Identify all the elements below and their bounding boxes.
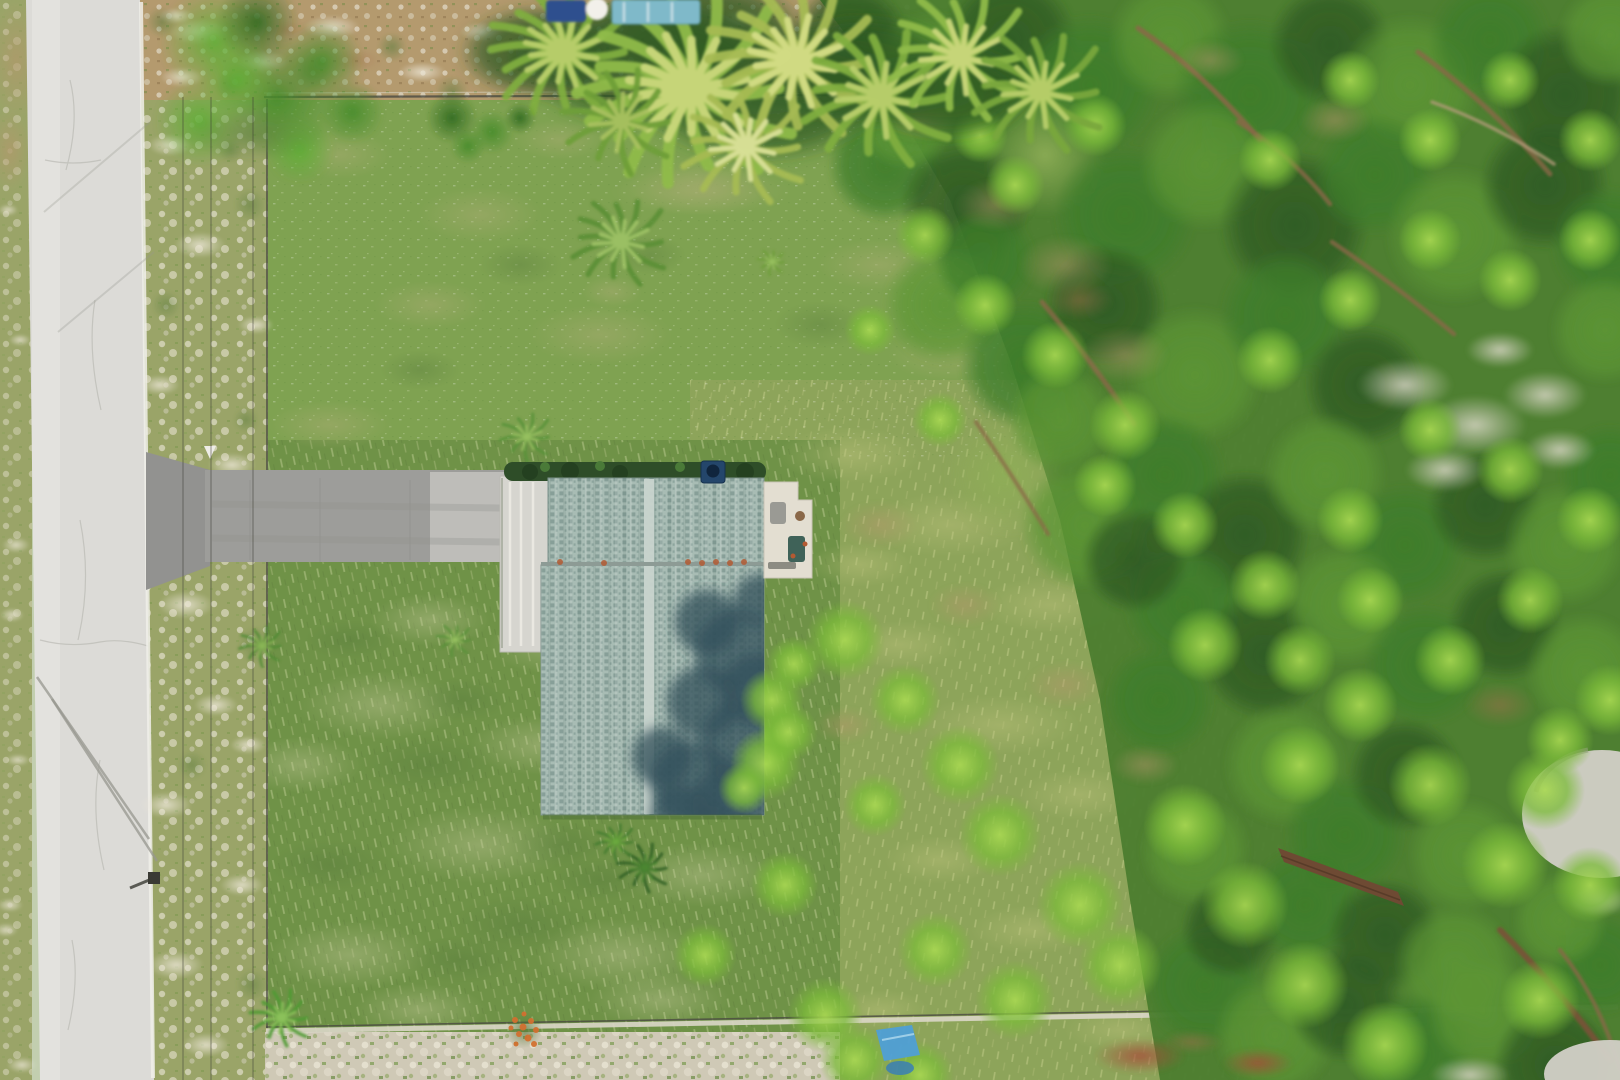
hedge-shadow-blob	[561, 462, 579, 480]
hedge-highlight	[540, 462, 550, 472]
hedge-highlight	[595, 461, 605, 471]
driveway-light-section	[430, 472, 505, 562]
patio-step	[768, 562, 796, 569]
tarp-small-piece	[886, 1061, 914, 1075]
driveway-tire-streak	[212, 538, 500, 542]
hedge-highlight	[675, 462, 685, 472]
pool-items	[546, 0, 700, 24]
driveway-apron	[146, 452, 210, 590]
road	[26, 0, 154, 1080]
patio-brown-item	[795, 511, 805, 521]
roof-north-columns	[548, 478, 764, 565]
patio-rust-dot	[791, 554, 796, 559]
driveway-tire-streak	[212, 504, 500, 508]
patio-dark-unit	[788, 536, 805, 562]
blue-pool-float	[546, 0, 586, 22]
teal-pool-deck	[612, 0, 700, 24]
patio-rust-dot	[803, 542, 808, 547]
bottom-sandy-strip	[265, 1032, 840, 1080]
aerial-photo	[0, 0, 1620, 1080]
hedge-shadow-blob	[522, 464, 538, 480]
aerial-scene	[0, 0, 1620, 1080]
grill-lid	[707, 465, 720, 478]
roof-ridge-north	[644, 479, 654, 565]
patio-equipment	[770, 502, 786, 524]
